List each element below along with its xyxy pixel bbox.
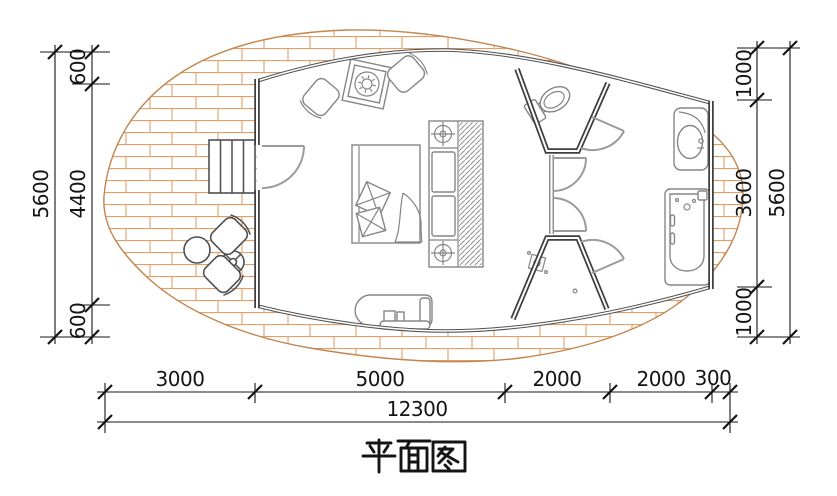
washbasin: [674, 108, 708, 170]
floor-plan-svg: 600 4400 600 5600 1000 3600 1000 5600 30…: [0, 0, 837, 496]
bench-console: [355, 295, 432, 329]
hanging-clothes-hatch: [459, 123, 482, 266]
dimension-bottom: 3000 5000 2000 2000 300 12300: [97, 366, 738, 433]
entry-steps: [209, 140, 255, 193]
dim-label-overall: 12300: [386, 397, 447, 421]
dim-label: 4400: [66, 170, 90, 219]
dim-label: 3600: [732, 169, 756, 218]
side-table: [342, 59, 392, 109]
wardrobe: [429, 121, 483, 267]
nightstand: [432, 196, 455, 236]
dim-label: 1000: [732, 50, 756, 99]
dim-label: 300: [695, 366, 732, 390]
double-bed: [352, 145, 422, 243]
dim-label: 5000: [356, 367, 405, 391]
dimension-right: 1000 3600 1000 5600: [732, 41, 800, 344]
pillow: [356, 207, 385, 236]
bathtub: [665, 189, 710, 285]
nightstand: [432, 152, 455, 192]
dim-label: 3000: [156, 367, 205, 391]
dim-label: 2000: [637, 367, 686, 391]
dimension-left: 600 4400 600 5600: [29, 45, 110, 344]
floor-plan-page: 平面图: [0, 0, 837, 496]
dim-label-overall: 5600: [765, 169, 789, 218]
dim-label: 600: [66, 49, 90, 86]
dim-label: 2000: [533, 367, 582, 391]
outdoor-round-table: [184, 237, 210, 263]
drawing-title-glyphs: [363, 440, 465, 472]
dim-label: 600: [66, 303, 90, 340]
dim-label: 1000: [732, 288, 756, 337]
dim-label-overall: 5600: [29, 170, 53, 219]
